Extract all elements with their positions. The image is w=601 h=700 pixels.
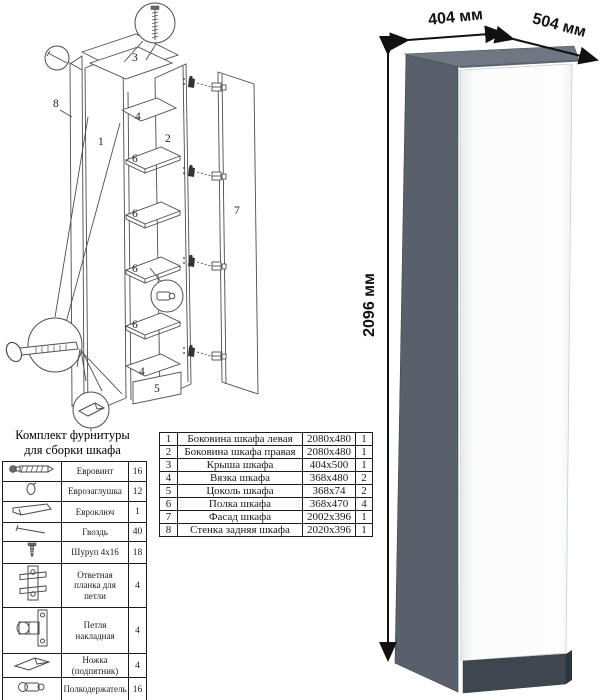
diagram-label-6: 6 xyxy=(132,319,138,331)
euro-key-icon xyxy=(7,502,57,517)
nail-callout xyxy=(45,46,82,70)
foot-icon xyxy=(7,654,57,672)
diagram-label-1: 1 xyxy=(98,136,104,148)
parts-row: 4 Вязка шкафа 368x480 2 xyxy=(160,472,373,485)
confirmat-screw-callout xyxy=(135,3,175,43)
diagram-label-7: 7 xyxy=(234,205,240,217)
cabinet-plinth xyxy=(463,654,566,693)
hardware-row: Ответная планка для петли 4 xyxy=(3,564,147,608)
parts-row: 6 Полка шкафа 368x470 4 xyxy=(160,498,373,511)
euro-cap-icon xyxy=(7,482,57,496)
parts-row: 8 Стенка задняя шкафа 2020x396 1 xyxy=(160,524,373,537)
parts-row: 2 Боковина шкафа правая 2080x480 1 xyxy=(160,446,373,459)
diagram-label-6: 6 xyxy=(132,153,138,165)
foot-callout xyxy=(73,392,109,432)
nail-icon xyxy=(7,524,57,536)
hardware-row: Гвоздь 40 xyxy=(3,523,147,542)
cabinet-plinth-edge xyxy=(566,650,572,684)
hardware-row: Полкодержатель 16 xyxy=(3,678,147,700)
diagram-label-6: 6 xyxy=(132,208,138,220)
euro-screw-icon xyxy=(7,462,57,476)
parts-row: 5 Цоколь шкафа 368x74 2 xyxy=(160,485,373,498)
hardware-kit: Комплект фурнитуры для сборки шкафа Евро… xyxy=(2,428,143,700)
diagram-left-side-panel xyxy=(85,53,126,414)
parts-table: 1 Боковина шкафа левая 2080x480 1 2 Боко… xyxy=(159,432,373,537)
hardware-row: Евроключ 1 xyxy=(3,502,147,523)
hinge-icon xyxy=(7,608,57,648)
shelf-holder-icon xyxy=(7,678,57,696)
cabinet-render: 2096 мм 404 мм 504 мм xyxy=(360,0,601,700)
diagram-label-6: 6 xyxy=(132,263,138,275)
hardware-row: Петля накладная 4 xyxy=(3,608,147,654)
hardware-row: Евровинт 16 xyxy=(3,462,147,482)
hardware-row: Шуруп 4x16 18 xyxy=(3,542,147,564)
diagram-door-panel xyxy=(218,72,258,394)
diagram-label-2: 2 xyxy=(165,133,171,145)
hardware-row: Ножка (подпятник) 4 xyxy=(3,654,147,678)
screw-icon xyxy=(7,542,57,558)
cabinet-side-panel xyxy=(395,55,458,692)
hardware-row: Еврозаглушка 12 xyxy=(3,482,147,502)
diagram-label-4: 4 xyxy=(135,111,141,123)
parts-row: 7 Фасад шкафа 2002x396 1 xyxy=(160,511,373,524)
width-dimension-label: 404 мм xyxy=(427,6,483,29)
hardware-qty: 16 xyxy=(129,462,147,482)
diagram-label-3: 3 xyxy=(132,52,138,64)
height-dimension-label: 2096 мм xyxy=(361,273,378,337)
parts-row: 1 Боковина шкафа левая 2080x480 1 xyxy=(160,433,373,446)
hardware-kit-title: Комплект фурнитуры для сборки шкафа xyxy=(2,428,143,458)
assembly-sheet: 3 8 1 4 2 6 6 6 6 4 5 7 Комплект фурниту… xyxy=(0,0,601,700)
height-dimension: 2096 мм xyxy=(361,54,388,660)
diagram-label-5: 5 xyxy=(154,383,160,395)
hardware-table: Евровинт 16 Еврозаглушка 12 xyxy=(2,461,147,700)
parts-row: 3 Крыша шкафа 404x500 1 xyxy=(160,459,373,472)
hardware-name: Евровинт xyxy=(62,462,129,482)
depth-dimension-label: 504 мм xyxy=(530,10,587,41)
cabinet-door xyxy=(460,64,572,661)
hinge-plate-icon xyxy=(7,564,57,602)
diagram-label-8: 8 xyxy=(53,98,59,110)
diagram-label-4: 4 xyxy=(139,366,145,378)
width-dimension: 404 мм xyxy=(408,6,503,40)
exploded-diagram: 3 8 1 4 2 6 6 6 6 4 5 7 xyxy=(0,0,360,432)
